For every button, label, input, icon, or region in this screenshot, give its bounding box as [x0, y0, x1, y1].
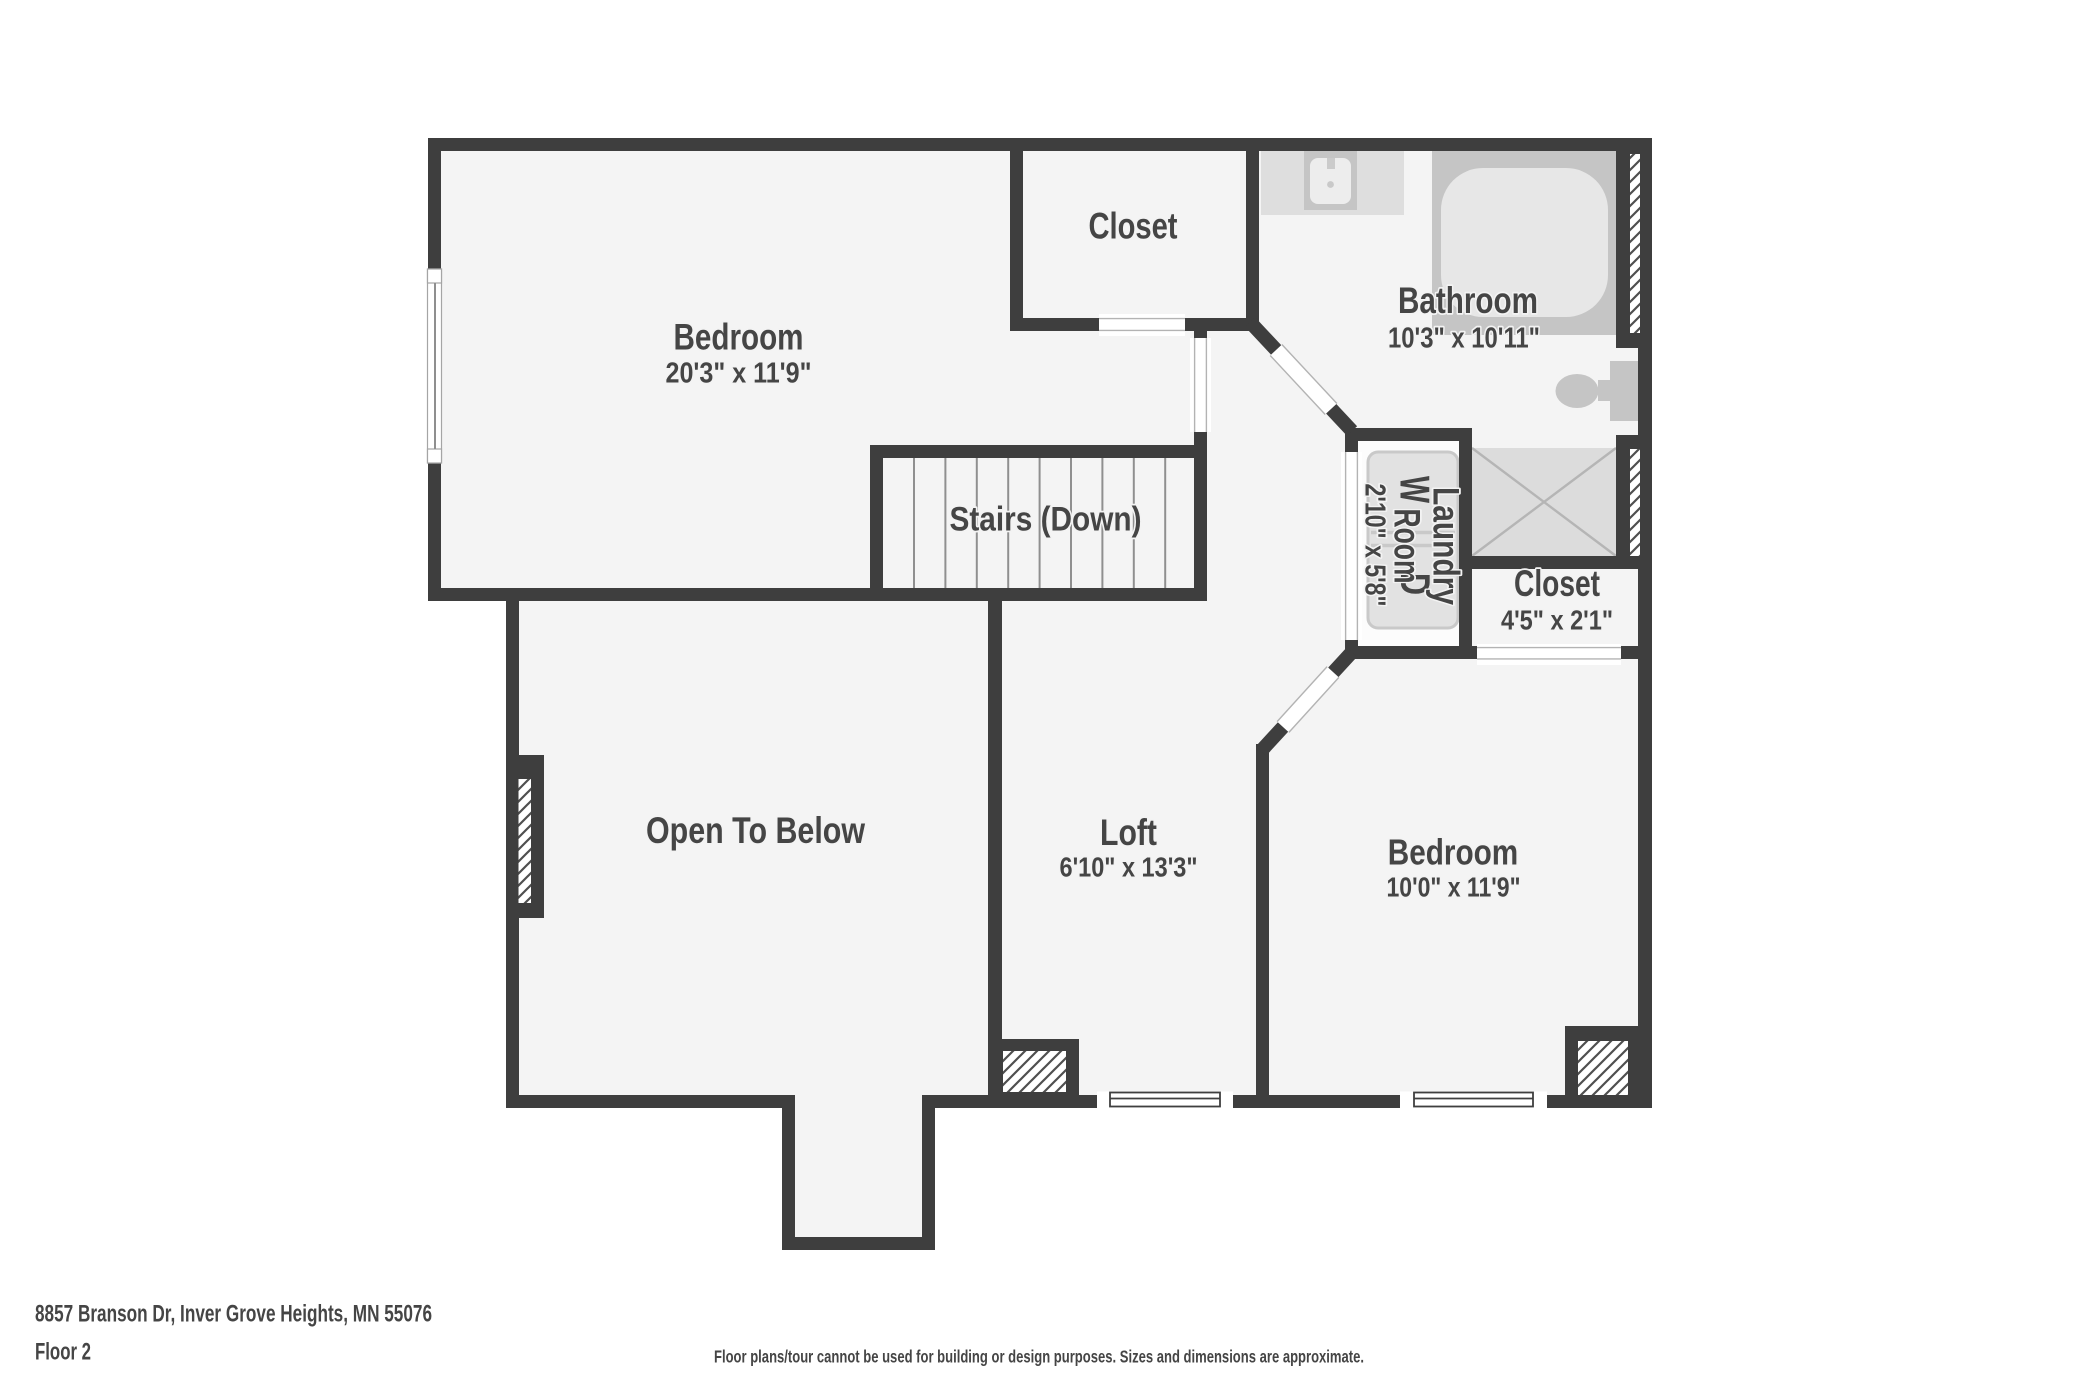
svg-text:Bedroom: Bedroom	[674, 317, 804, 358]
svg-text:Floor 2: Floor 2	[35, 1339, 91, 1366]
svg-text:4'5" x 2'1": 4'5" x 2'1"	[1501, 605, 1613, 636]
svg-text:6'10" x 13'3": 6'10" x 13'3"	[1060, 852, 1198, 883]
svg-text:Loft: Loft	[1100, 812, 1157, 853]
svg-text:Closet: Closet	[1089, 206, 1178, 247]
svg-text:Floor plans/tour cannot be use: Floor plans/tour cannot be used for buil…	[714, 1347, 1364, 1367]
svg-text:10'3" x 10'11": 10'3" x 10'11"	[1388, 323, 1540, 355]
svg-text:Open To Below: Open To Below	[646, 810, 865, 851]
svg-text:Bathroom: Bathroom	[1398, 280, 1538, 321]
svg-text:Room: Room	[1387, 509, 1428, 584]
svg-text:Stairs (Down): Stairs (Down)	[950, 501, 1142, 539]
svg-text:10'0" x 11'9": 10'0" x 11'9"	[1387, 872, 1521, 903]
svg-text:8857 Branson Dr, Inver Grove H: 8857 Branson Dr, Inver Grove Heights, MN…	[35, 1301, 432, 1328]
svg-text:2'10" x 5'8": 2'10" x 5'8"	[1359, 484, 1391, 607]
svg-text:Laundry: Laundry	[1426, 487, 1467, 605]
svg-text:Closet: Closet	[1514, 563, 1600, 604]
svg-text:Bedroom: Bedroom	[1388, 832, 1519, 873]
svg-text:20'3" x 11'9": 20'3" x 11'9"	[666, 358, 812, 390]
